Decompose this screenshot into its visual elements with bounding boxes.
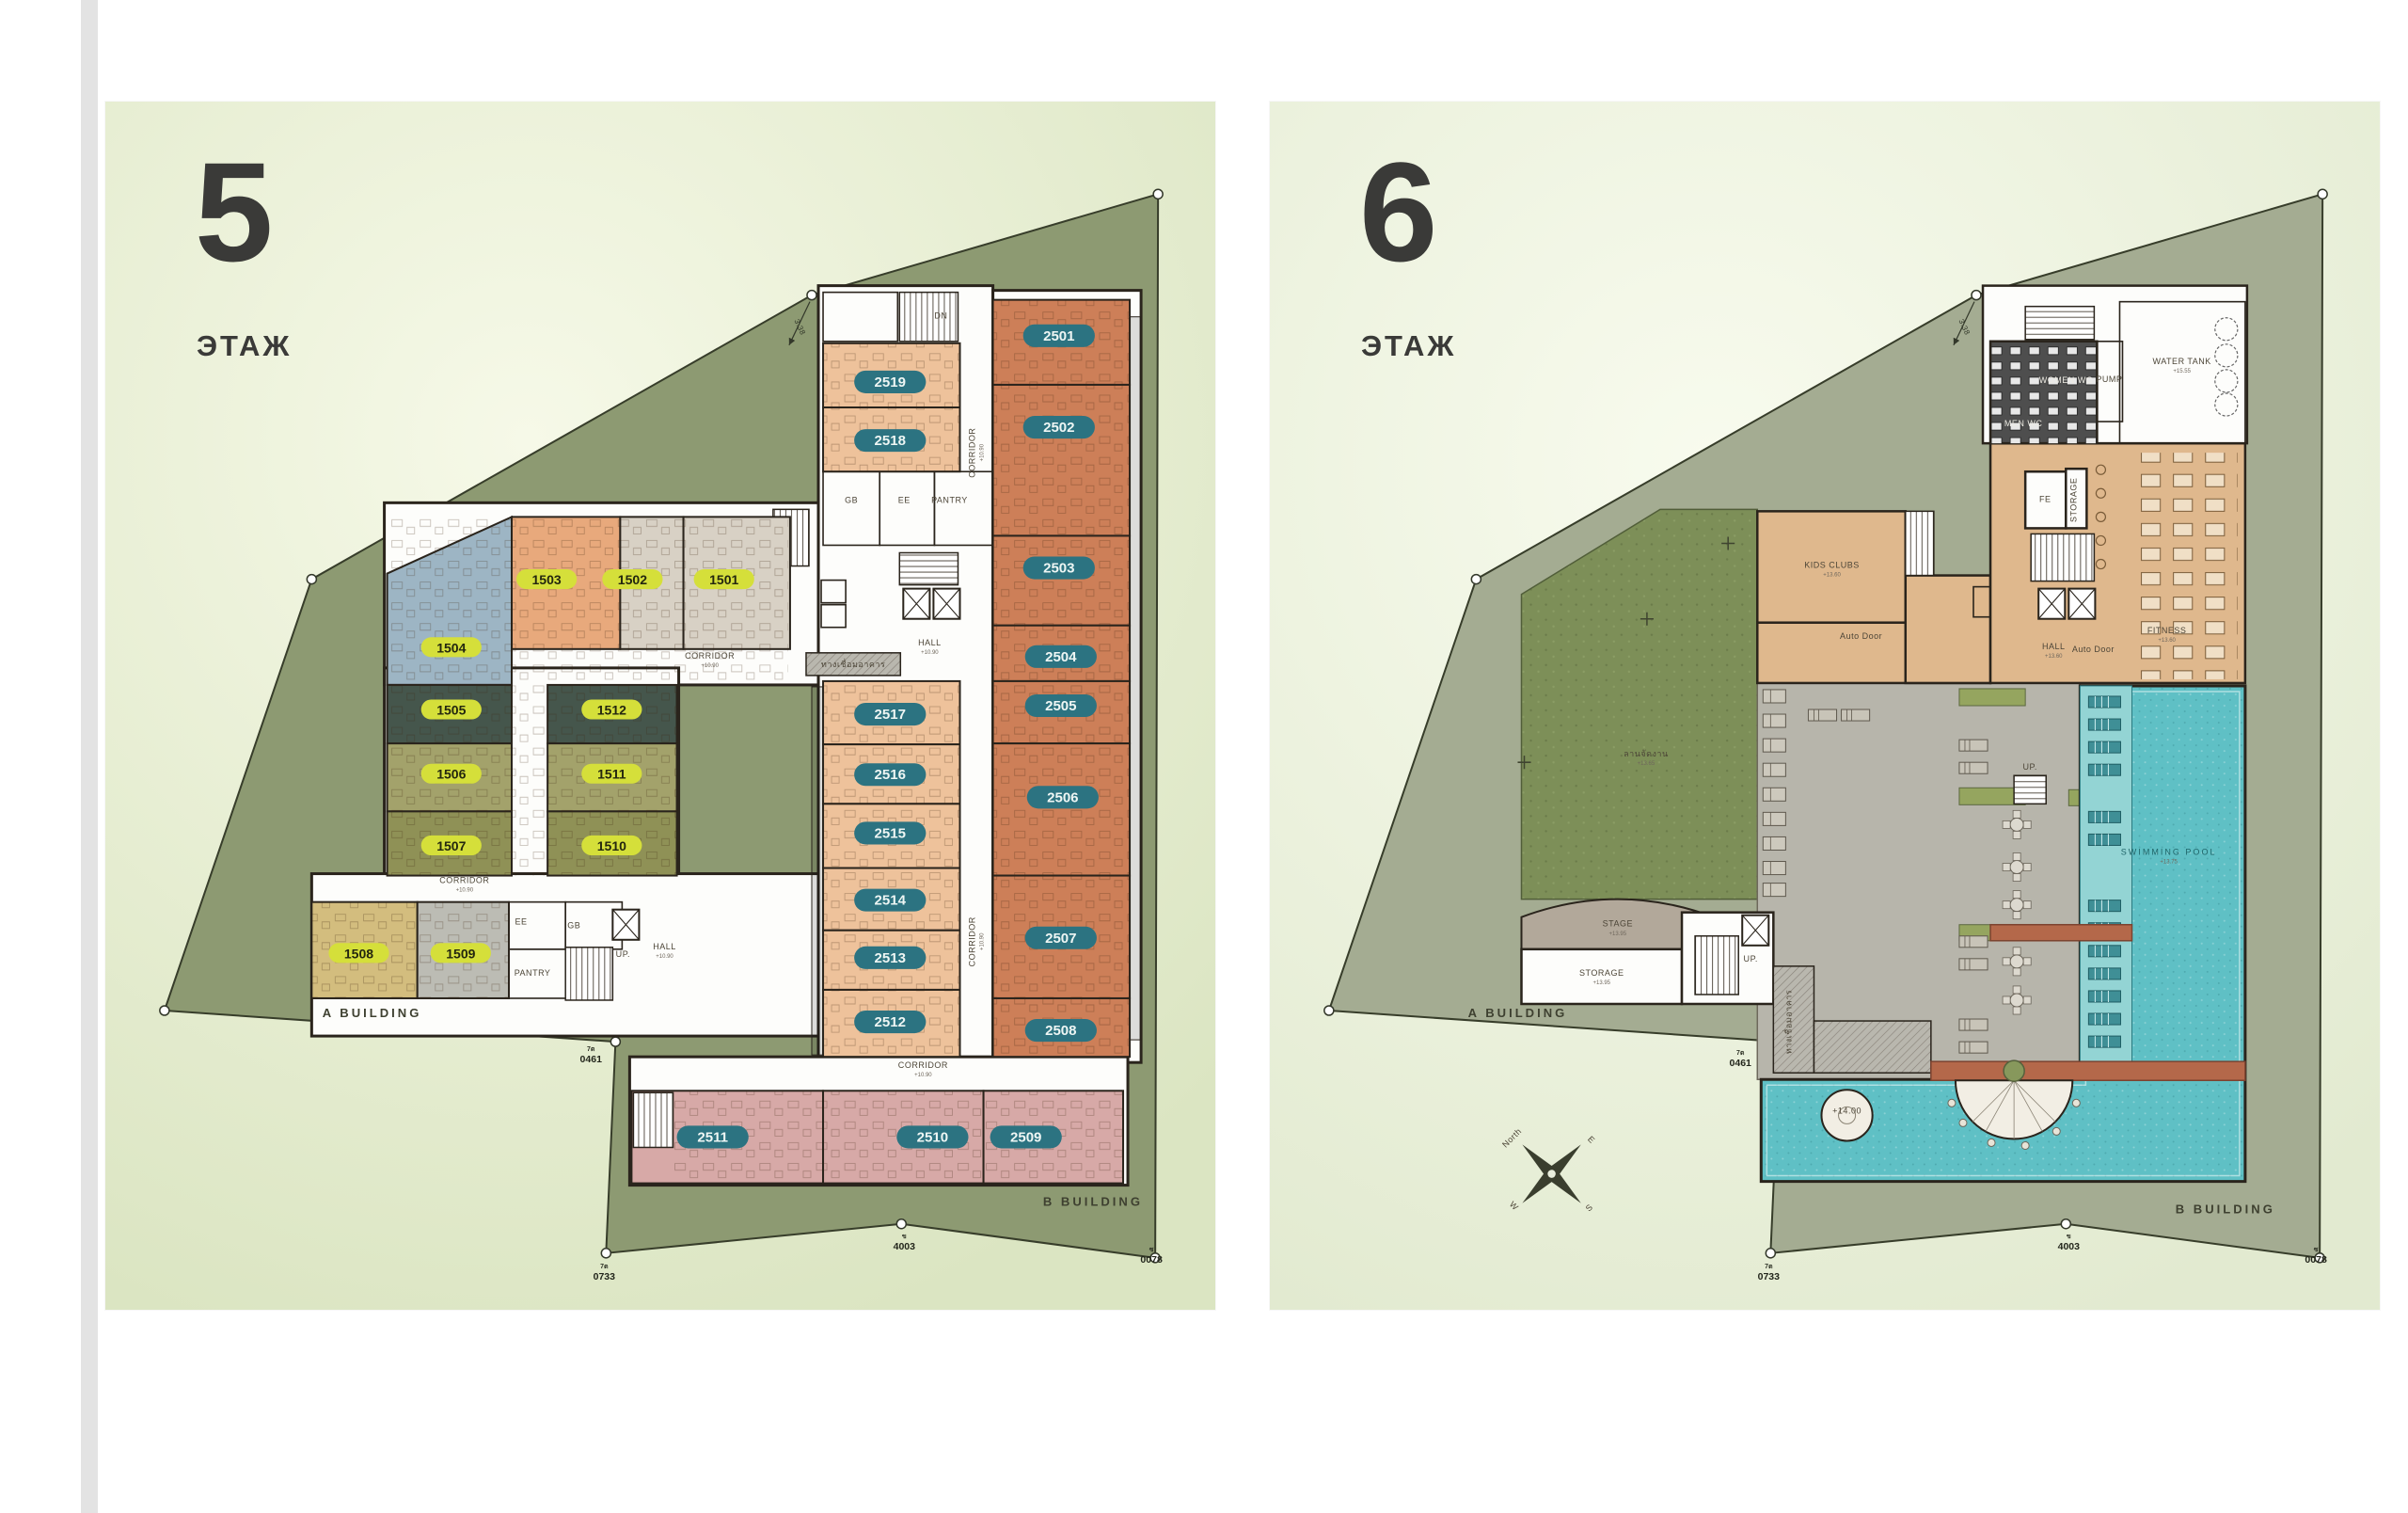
survey-marker-label-0461: 7ต0461 <box>1730 1050 1752 1069</box>
unit-badge-2503[interactable]: 2503 <box>1023 557 1095 580</box>
unit-badge-1506[interactable]: 1506 <box>421 764 482 784</box>
svg-text:1503: 1503 <box>532 572 562 587</box>
svg-text:1507: 1507 <box>436 838 466 853</box>
unit-badge-2504[interactable]: 2504 <box>1025 645 1097 668</box>
elevator-1 <box>2038 589 2065 619</box>
floor5-word: ЭТАЖ <box>197 329 292 363</box>
label-hall: HALL+10.90 <box>918 638 942 656</box>
svg-text:2516: 2516 <box>875 767 906 783</box>
label-up-: UP. <box>616 949 630 959</box>
unit-badge-2511[interactable]: 2511 <box>677 1125 749 1148</box>
unit-badge-2506[interactable]: 2506 <box>1027 786 1099 808</box>
label-e: E <box>1586 1134 1597 1145</box>
svg-text:2508: 2508 <box>1045 1023 1076 1039</box>
svg-text:2515: 2515 <box>875 825 906 841</box>
label-gb: GB <box>567 921 580 931</box>
svg-text:1504: 1504 <box>436 640 466 655</box>
label-a-building: A BUILDING <box>323 1006 422 1020</box>
label-gb: GB <box>845 495 858 504</box>
label-w: W <box>1508 1200 1520 1212</box>
svg-text:2501: 2501 <box>1043 328 1074 344</box>
svg-text:2507: 2507 <box>1045 931 1076 947</box>
svg-text:2504: 2504 <box>1045 649 1077 665</box>
label-up-: UP. <box>1744 954 1758 964</box>
unit-badge-2519[interactable]: 2519 <box>854 371 926 393</box>
svg-text:1511: 1511 <box>597 767 626 782</box>
pool-bridge-mid <box>1990 925 2131 941</box>
stairs-stage <box>1695 936 1738 995</box>
unit-badge-1509[interactable]: 1509 <box>431 943 491 963</box>
unit-badge-2514[interactable]: 2514 <box>854 889 926 912</box>
label-ee: EE <box>898 495 911 504</box>
furniture-overlay <box>823 681 959 1057</box>
label-s: S <box>1584 1202 1595 1214</box>
unit-badge-1505[interactable]: 1505 <box>421 699 482 719</box>
elevator-a <box>612 910 639 940</box>
unit-badge-2502[interactable]: 2502 <box>1023 416 1095 438</box>
unit-badge-2509[interactable]: 2509 <box>990 1125 1062 1148</box>
svg-text:2506: 2506 <box>1047 789 1078 805</box>
svg-text:2514: 2514 <box>875 893 907 909</box>
survey-marker-label-0733: 7ต0733 <box>594 1264 616 1282</box>
label-dn: DN <box>934 311 947 321</box>
unit-badge-1502[interactable]: 1502 <box>602 569 662 589</box>
unit-badge-1511[interactable]: 1511 <box>581 764 642 784</box>
unit-badge-1510[interactable]: 1510 <box>581 836 642 855</box>
gym-equipment <box>2134 453 2238 679</box>
walkway-horizontal <box>1814 1021 1930 1073</box>
stairs-a-core <box>565 948 612 1000</box>
page-edge-strip <box>81 0 98 1513</box>
wood-lobby <box>1906 576 1990 683</box>
floor6-number: 6 <box>1359 141 1435 282</box>
svg-text:2511: 2511 <box>697 1129 728 1145</box>
elevator-2 <box>2068 589 2095 619</box>
label-north: North <box>1500 1126 1523 1149</box>
unit-badge-2513[interactable]: 2513 <box>854 947 926 969</box>
deck-stairs <box>2014 775 2046 804</box>
label-pantry: PANTRY <box>515 968 551 978</box>
unit-badge-1512[interactable]: 1512 <box>581 699 642 719</box>
svg-text:1501: 1501 <box>709 572 738 587</box>
walkway-vertical <box>1773 966 1814 1073</box>
unit-badge-2510[interactable]: 2510 <box>896 1125 968 1148</box>
svg-text:1512: 1512 <box>597 703 626 718</box>
unit-badge-1503[interactable]: 1503 <box>516 569 577 589</box>
svg-text:2517: 2517 <box>875 707 906 723</box>
svg-text:2503: 2503 <box>1043 561 1074 577</box>
lawn-deck-chairs <box>1763 690 1785 897</box>
survey-marker-label-0733: 7ต0733 <box>1758 1264 1781 1282</box>
svg-text:2519: 2519 <box>875 374 906 390</box>
stairs-kids <box>1906 511 1934 575</box>
stairs-b-bottom <box>633 1092 673 1147</box>
svg-text:2505: 2505 <box>1045 698 1076 714</box>
svg-text:2509: 2509 <box>1010 1129 1041 1145</box>
svg-text:2518: 2518 <box>875 433 906 449</box>
survey-marker-label-4003: ข4003 <box>894 1234 916 1252</box>
label-b-building: B BUILDING <box>1043 1195 1143 1209</box>
elevator-stage <box>1742 916 1768 946</box>
unit-badge-2508[interactable]: 2508 <box>1025 1019 1097 1042</box>
label-pump: PUMP <box>2096 374 2122 384</box>
unit-badge-2501[interactable]: 2501 <box>1023 325 1095 347</box>
floor5-number: 5 <box>195 141 271 282</box>
stairs-b-top <box>899 293 958 342</box>
svg-text:2510: 2510 <box>917 1129 948 1145</box>
label-storage: STORAGE <box>2068 478 2078 522</box>
label-pantry: PANTRY <box>931 495 968 504</box>
label-hall: HALL+13.60 <box>2042 642 2066 660</box>
label--: ทางเชื่อมอาคาร <box>821 658 885 669</box>
unit-badge-2515[interactable]: 2515 <box>854 821 926 844</box>
label--14-00: +14.00 <box>1832 1106 1861 1115</box>
label--: ทางเชื่อมอาคาร <box>1782 990 1793 1054</box>
unit-badge-1508[interactable]: 1508 <box>328 943 388 963</box>
label-hall: HALL+10.90 <box>653 942 676 960</box>
svg-text:2512: 2512 <box>875 1014 906 1030</box>
unit-badge-2518[interactable]: 2518 <box>854 429 926 452</box>
stairs-roof <box>2025 307 2094 340</box>
pool-bridge-south <box>1931 1061 2245 1080</box>
elevator-b2 <box>933 589 959 619</box>
unit-badge-2512[interactable]: 2512 <box>854 1011 926 1033</box>
svg-text:2513: 2513 <box>875 950 906 966</box>
label-a-building: A BUILDING <box>1468 1006 1568 1020</box>
unit-badge-2517[interactable]: 2517 <box>854 703 926 725</box>
label-women-wc: WOMEN WC <box>2039 375 2093 385</box>
svg-text:1509: 1509 <box>446 946 475 961</box>
unit-badge-1501[interactable]: 1501 <box>694 569 754 589</box>
unit-badge-2505[interactable]: 2505 <box>1025 694 1097 717</box>
svg-text:1508: 1508 <box>344 946 373 961</box>
balcony-strip-east <box>1130 317 1141 1040</box>
floor5-plan: CORRIDOR+10.90CORRIDOR+10.90CORRIDOR+10.… <box>105 102 1215 1310</box>
label-ee: EE <box>515 917 528 927</box>
survey-marker-label-0461: 7ต0461 <box>580 1046 603 1065</box>
stairs-core <box>2031 534 2094 581</box>
label-men-wc: MEN WC <box>2004 419 2043 428</box>
unit-badge-1504[interactable]: 1504 <box>421 637 482 657</box>
bridge-tree <box>2004 1060 2024 1081</box>
floor6-word: ЭТАЖ <box>1361 329 1456 363</box>
label-b-building: B BUILDING <box>2176 1202 2275 1217</box>
label-fe: FE <box>2039 494 2052 503</box>
balcony-strip-west <box>812 687 823 1055</box>
stairs-b-hall <box>899 552 958 584</box>
svg-text:1505: 1505 <box>436 703 466 718</box>
unit-badge-1507[interactable]: 1507 <box>421 836 482 855</box>
planter <box>1959 689 2025 706</box>
svg-text:1506: 1506 <box>436 767 466 782</box>
floor6-panel: WATER TANK+15.55PUMPWOMEN WCMEN WCFESTOR… <box>1270 102 2380 1310</box>
label-up-: UP. <box>2022 762 2036 772</box>
svg-text:1502: 1502 <box>618 572 647 587</box>
unit-badge-2516[interactable]: 2516 <box>854 763 926 786</box>
furniture-overlay <box>823 343 959 471</box>
label-auto-door: Auto Door <box>2072 645 2115 654</box>
unit-badge-2507[interactable]: 2507 <box>1025 927 1097 949</box>
elevator-b1 <box>903 589 929 619</box>
label-auto-door: Auto Door <box>1840 631 1882 641</box>
floor6-plan: WATER TANK+15.55PUMPWOMEN WCMEN WCFESTOR… <box>1270 102 2380 1310</box>
floor5-panel: CORRIDOR+10.90CORRIDOR+10.90CORRIDOR+10.… <box>105 102 1215 1310</box>
svg-text:2502: 2502 <box>1043 420 1074 436</box>
survey-marker-label-4003: ข4003 <box>2058 1234 2081 1252</box>
svg-text:1510: 1510 <box>597 838 626 853</box>
